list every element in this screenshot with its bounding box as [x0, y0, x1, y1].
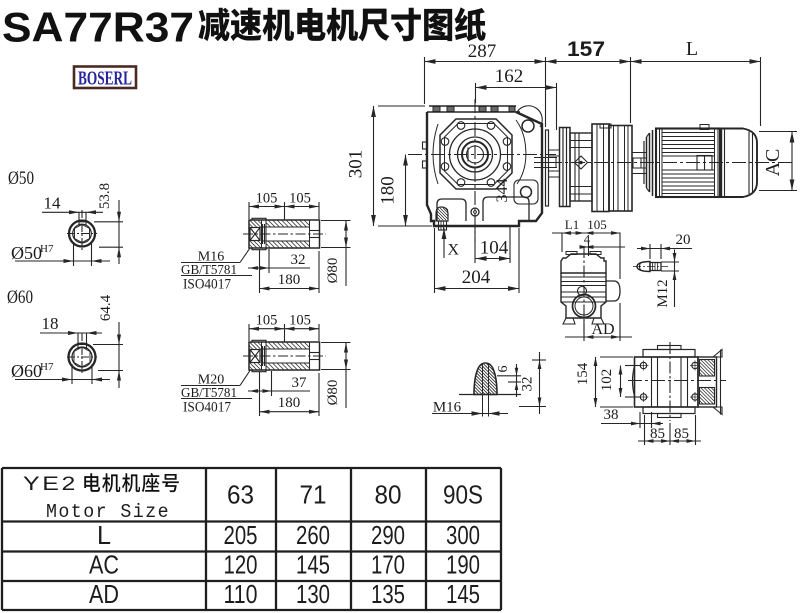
svg-text:L: L	[686, 38, 698, 60]
svg-text:AD: AD	[89, 579, 119, 609]
svg-text:180: 180	[278, 272, 301, 288]
svg-text:105: 105	[289, 191, 311, 207]
svg-text:14: 14	[44, 194, 62, 213]
svg-text:80: 80	[375, 480, 402, 510]
svg-text:120: 120	[224, 550, 258, 580]
svg-text:85: 85	[674, 426, 689, 442]
svg-text:205: 205	[224, 520, 258, 550]
svg-text:63: 63	[227, 480, 254, 510]
svg-text:Ø80: Ø80	[325, 380, 341, 406]
svg-text:190: 190	[446, 550, 480, 580]
svg-text:260: 260	[296, 520, 330, 550]
svg-text:ISO4017: ISO4017	[183, 400, 231, 416]
svg-text:102: 102	[599, 369, 615, 392]
svg-text:162: 162	[495, 66, 524, 87]
svg-text:344: 344	[494, 179, 511, 203]
svg-text:290: 290	[371, 520, 405, 550]
svg-text:L1: L1	[565, 217, 579, 232]
svg-text:105: 105	[289, 313, 311, 329]
svg-text:ISO4017: ISO4017	[183, 277, 231, 293]
svg-text:204: 204	[462, 267, 491, 288]
svg-text:SA77R37: SA77R37	[2, 4, 194, 51]
svg-text:AC: AC	[89, 550, 119, 580]
svg-text:157: 157	[567, 38, 605, 61]
svg-text:6: 6	[496, 366, 511, 373]
svg-text:180: 180	[278, 395, 301, 411]
svg-text:110: 110	[224, 579, 258, 609]
svg-text:Ø60: Ø60	[11, 361, 42, 381]
svg-text:37: 37	[292, 375, 308, 391]
svg-text:Ø60: Ø60	[7, 287, 33, 308]
svg-text:154: 154	[575, 362, 591, 385]
svg-text:18: 18	[42, 314, 59, 333]
svg-text:X: X	[448, 242, 460, 259]
svg-text:38: 38	[604, 407, 619, 423]
svg-text:Ø50: Ø50	[8, 168, 34, 189]
svg-text:300: 300	[446, 520, 480, 550]
svg-text:20: 20	[676, 232, 691, 248]
svg-text:170: 170	[371, 550, 405, 580]
svg-text:32: 32	[291, 252, 306, 268]
svg-text:287: 287	[468, 41, 497, 62]
svg-text:180: 180	[378, 176, 399, 205]
svg-text:53.8: 53.8	[97, 183, 113, 209]
svg-text:AC: AC	[762, 149, 784, 177]
svg-text:H7: H7	[40, 361, 54, 373]
svg-text:AD: AD	[591, 321, 614, 338]
svg-text:H7: H7	[40, 243, 54, 255]
svg-text:Ø50: Ø50	[11, 243, 42, 263]
svg-text:M12: M12	[655, 279, 671, 307]
svg-text:32: 32	[520, 377, 536, 392]
svg-text:BOSERL: BOSERL	[78, 68, 132, 90]
svg-text:L: L	[97, 520, 111, 550]
svg-text:71: 71	[300, 480, 327, 510]
svg-text:64.4: 64.4	[98, 294, 114, 321]
svg-text:105: 105	[256, 313, 278, 329]
svg-text:85: 85	[650, 426, 665, 442]
svg-text:104: 104	[480, 238, 509, 259]
svg-text:135: 135	[371, 579, 405, 609]
svg-text:301: 301	[346, 150, 367, 179]
svg-text:YE2: YE2	[23, 474, 78, 495]
svg-text:Ø80: Ø80	[325, 258, 341, 284]
svg-text:90S: 90S	[443, 480, 483, 510]
svg-text:105: 105	[256, 191, 278, 207]
svg-text:145: 145	[446, 579, 480, 609]
svg-text:4: 4	[584, 232, 591, 247]
svg-text:145: 145	[296, 550, 330, 580]
svg-text:105: 105	[587, 217, 607, 232]
svg-text:130: 130	[296, 579, 330, 609]
